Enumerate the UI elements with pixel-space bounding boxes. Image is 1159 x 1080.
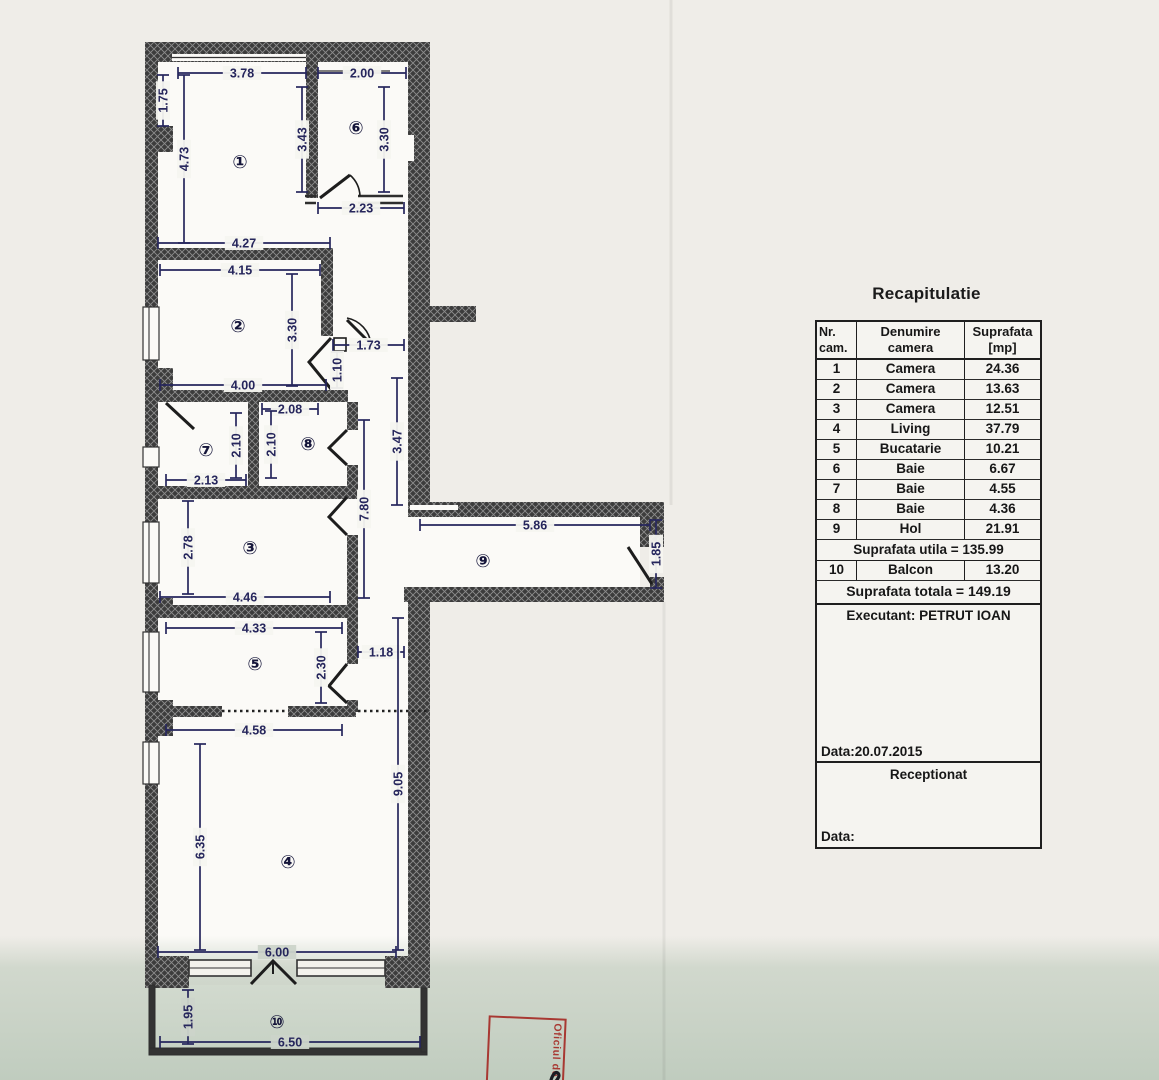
executant-box: Executant: PETRUT IOAN Data:20.07.2015 [817, 605, 1040, 763]
dimension-label: 4.33 [242, 622, 266, 636]
executant-line: Executant: PETRUT IOAN [817, 605, 1040, 623]
room-number-label: ⑩ [269, 1012, 284, 1033]
dimension-label: 4.00 [231, 379, 255, 393]
dimension-label: 1.10 [331, 358, 345, 382]
header-denumire: Denumirecamera [857, 322, 965, 358]
room-number-label: ④ [280, 852, 295, 873]
date-line: Data:20.07.2015 [821, 744, 922, 759]
header-nr: Nr.cam. [817, 322, 857, 358]
dimension-label: 1.85 [650, 542, 664, 566]
dimension-label: 3.30 [378, 127, 392, 151]
dimension-label: 1.95 [182, 1005, 196, 1029]
table-row: 5Bucatarie10.21 [817, 440, 1040, 460]
dimension: 1.18 [358, 645, 404, 660]
table-row: 1Camera24.36 [817, 360, 1040, 380]
room-number-label: ⑧ [300, 434, 315, 455]
scan-creases [664, 0, 671, 1080]
table-row: 4Living37.79 [817, 420, 1040, 440]
dimension-label: 5.86 [523, 519, 547, 533]
subtotal-row: Suprafata utila = 135.99 [817, 540, 1040, 561]
room-number-label: ⑨ [475, 551, 490, 572]
dimension-label: 2.10 [265, 432, 279, 456]
dimension-label: 3.47 [391, 429, 405, 453]
dimension-label: 4.27 [232, 237, 256, 251]
header-suprafata: Suprafata[mp] [965, 322, 1040, 358]
table-row: 9Hol21.91 [817, 520, 1040, 540]
dimension-label: 2.78 [182, 535, 196, 559]
dimension-label: 2.10 [230, 433, 244, 457]
total-row: Suprafata totala = 149.19 [817, 581, 1040, 605]
dimension-label: 7.80 [358, 497, 372, 521]
dimension-label: 9.05 [392, 772, 406, 796]
room-number-label: ③ [242, 538, 257, 559]
dimension: 1.95 [181, 990, 196, 1044]
table-row: 7Baie4.55 [817, 480, 1040, 500]
recap-table: Nr.cam. Denumirecamera Suprafata[mp] 1Ca… [815, 320, 1042, 849]
dimension: 1.75 [156, 75, 171, 126]
room-number-label: ⑥ [348, 118, 363, 139]
dimension-label: 2.00 [350, 67, 374, 81]
dimension-label: 4.15 [228, 264, 252, 278]
table-header-row: Nr.cam. Denumirecamera Suprafata[mp] [817, 322, 1040, 360]
dimension-label: 6.35 [194, 835, 208, 859]
dimension-label: 3.30 [286, 318, 300, 342]
office-stamp: Oficiul de C [485, 1015, 566, 1080]
dimension-label: 1.75 [157, 88, 171, 112]
dimension-label: 2.13 [194, 474, 218, 488]
dimension-label: 4.58 [242, 724, 266, 738]
dimension-label: 3.78 [230, 67, 254, 81]
dimension-label: 4.46 [233, 591, 257, 605]
dimension-label: 1.73 [356, 339, 380, 353]
table-row: 2Camera13.63 [817, 380, 1040, 400]
dimension-label: 2.23 [349, 202, 373, 216]
table-row: 6Baie6.67 [817, 460, 1040, 480]
dimension-label: 2.08 [278, 403, 302, 417]
table-row: 8Baie4.36 [817, 500, 1040, 520]
dimension-label: 1.18 [369, 646, 393, 660]
dimension-label: 6.00 [265, 946, 289, 960]
dimension-label: 6.50 [278, 1036, 302, 1050]
room-number-label: ② [230, 316, 245, 337]
room-number-label: ⑤ [247, 654, 262, 675]
room-number-label: ⑦ [198, 440, 213, 461]
pen-mark [535, 1066, 576, 1080]
table-row: 3Camera12.51 [817, 400, 1040, 420]
receptionat-label: Receptionat [817, 763, 1040, 782]
receptionat-box: Receptionat Data: [817, 763, 1040, 847]
recap-title: Recapitulatie [815, 284, 1038, 304]
dimension: 1.10 [330, 351, 345, 389]
balcon-row: 10Balcon13.20 [817, 561, 1040, 581]
room-number-label: ① [232, 152, 247, 173]
dimension-label: 4.73 [178, 147, 192, 171]
dimension-label: 2.30 [315, 655, 329, 679]
scanned-floor-plan-page: 3.782.001.754.733.433.302.234.274.153.30… [0, 0, 1159, 1080]
floor-area [154, 62, 640, 1048]
data-label: Data: [821, 829, 855, 844]
dimension-label: 3.43 [296, 127, 310, 151]
